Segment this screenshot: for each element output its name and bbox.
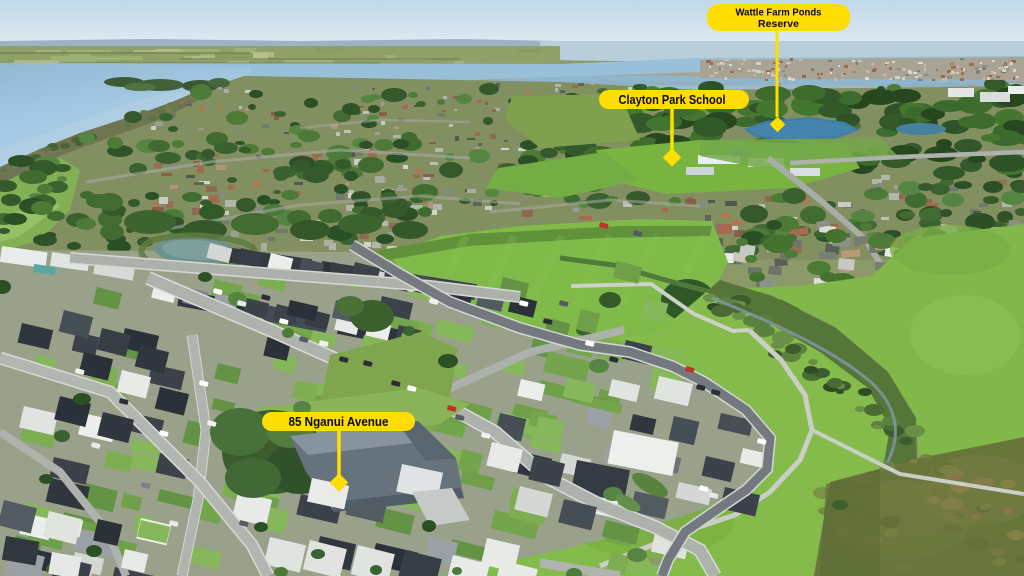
- svg-text:Wattle Farm Ponds: Wattle Farm Ponds: [736, 7, 822, 19]
- svg-text:85 Nganui Avenue: 85 Nganui Avenue: [289, 415, 389, 429]
- svg-text:Clayton Park School: Clayton Park School: [619, 93, 726, 107]
- svg-text:Reserve: Reserve: [758, 18, 799, 30]
